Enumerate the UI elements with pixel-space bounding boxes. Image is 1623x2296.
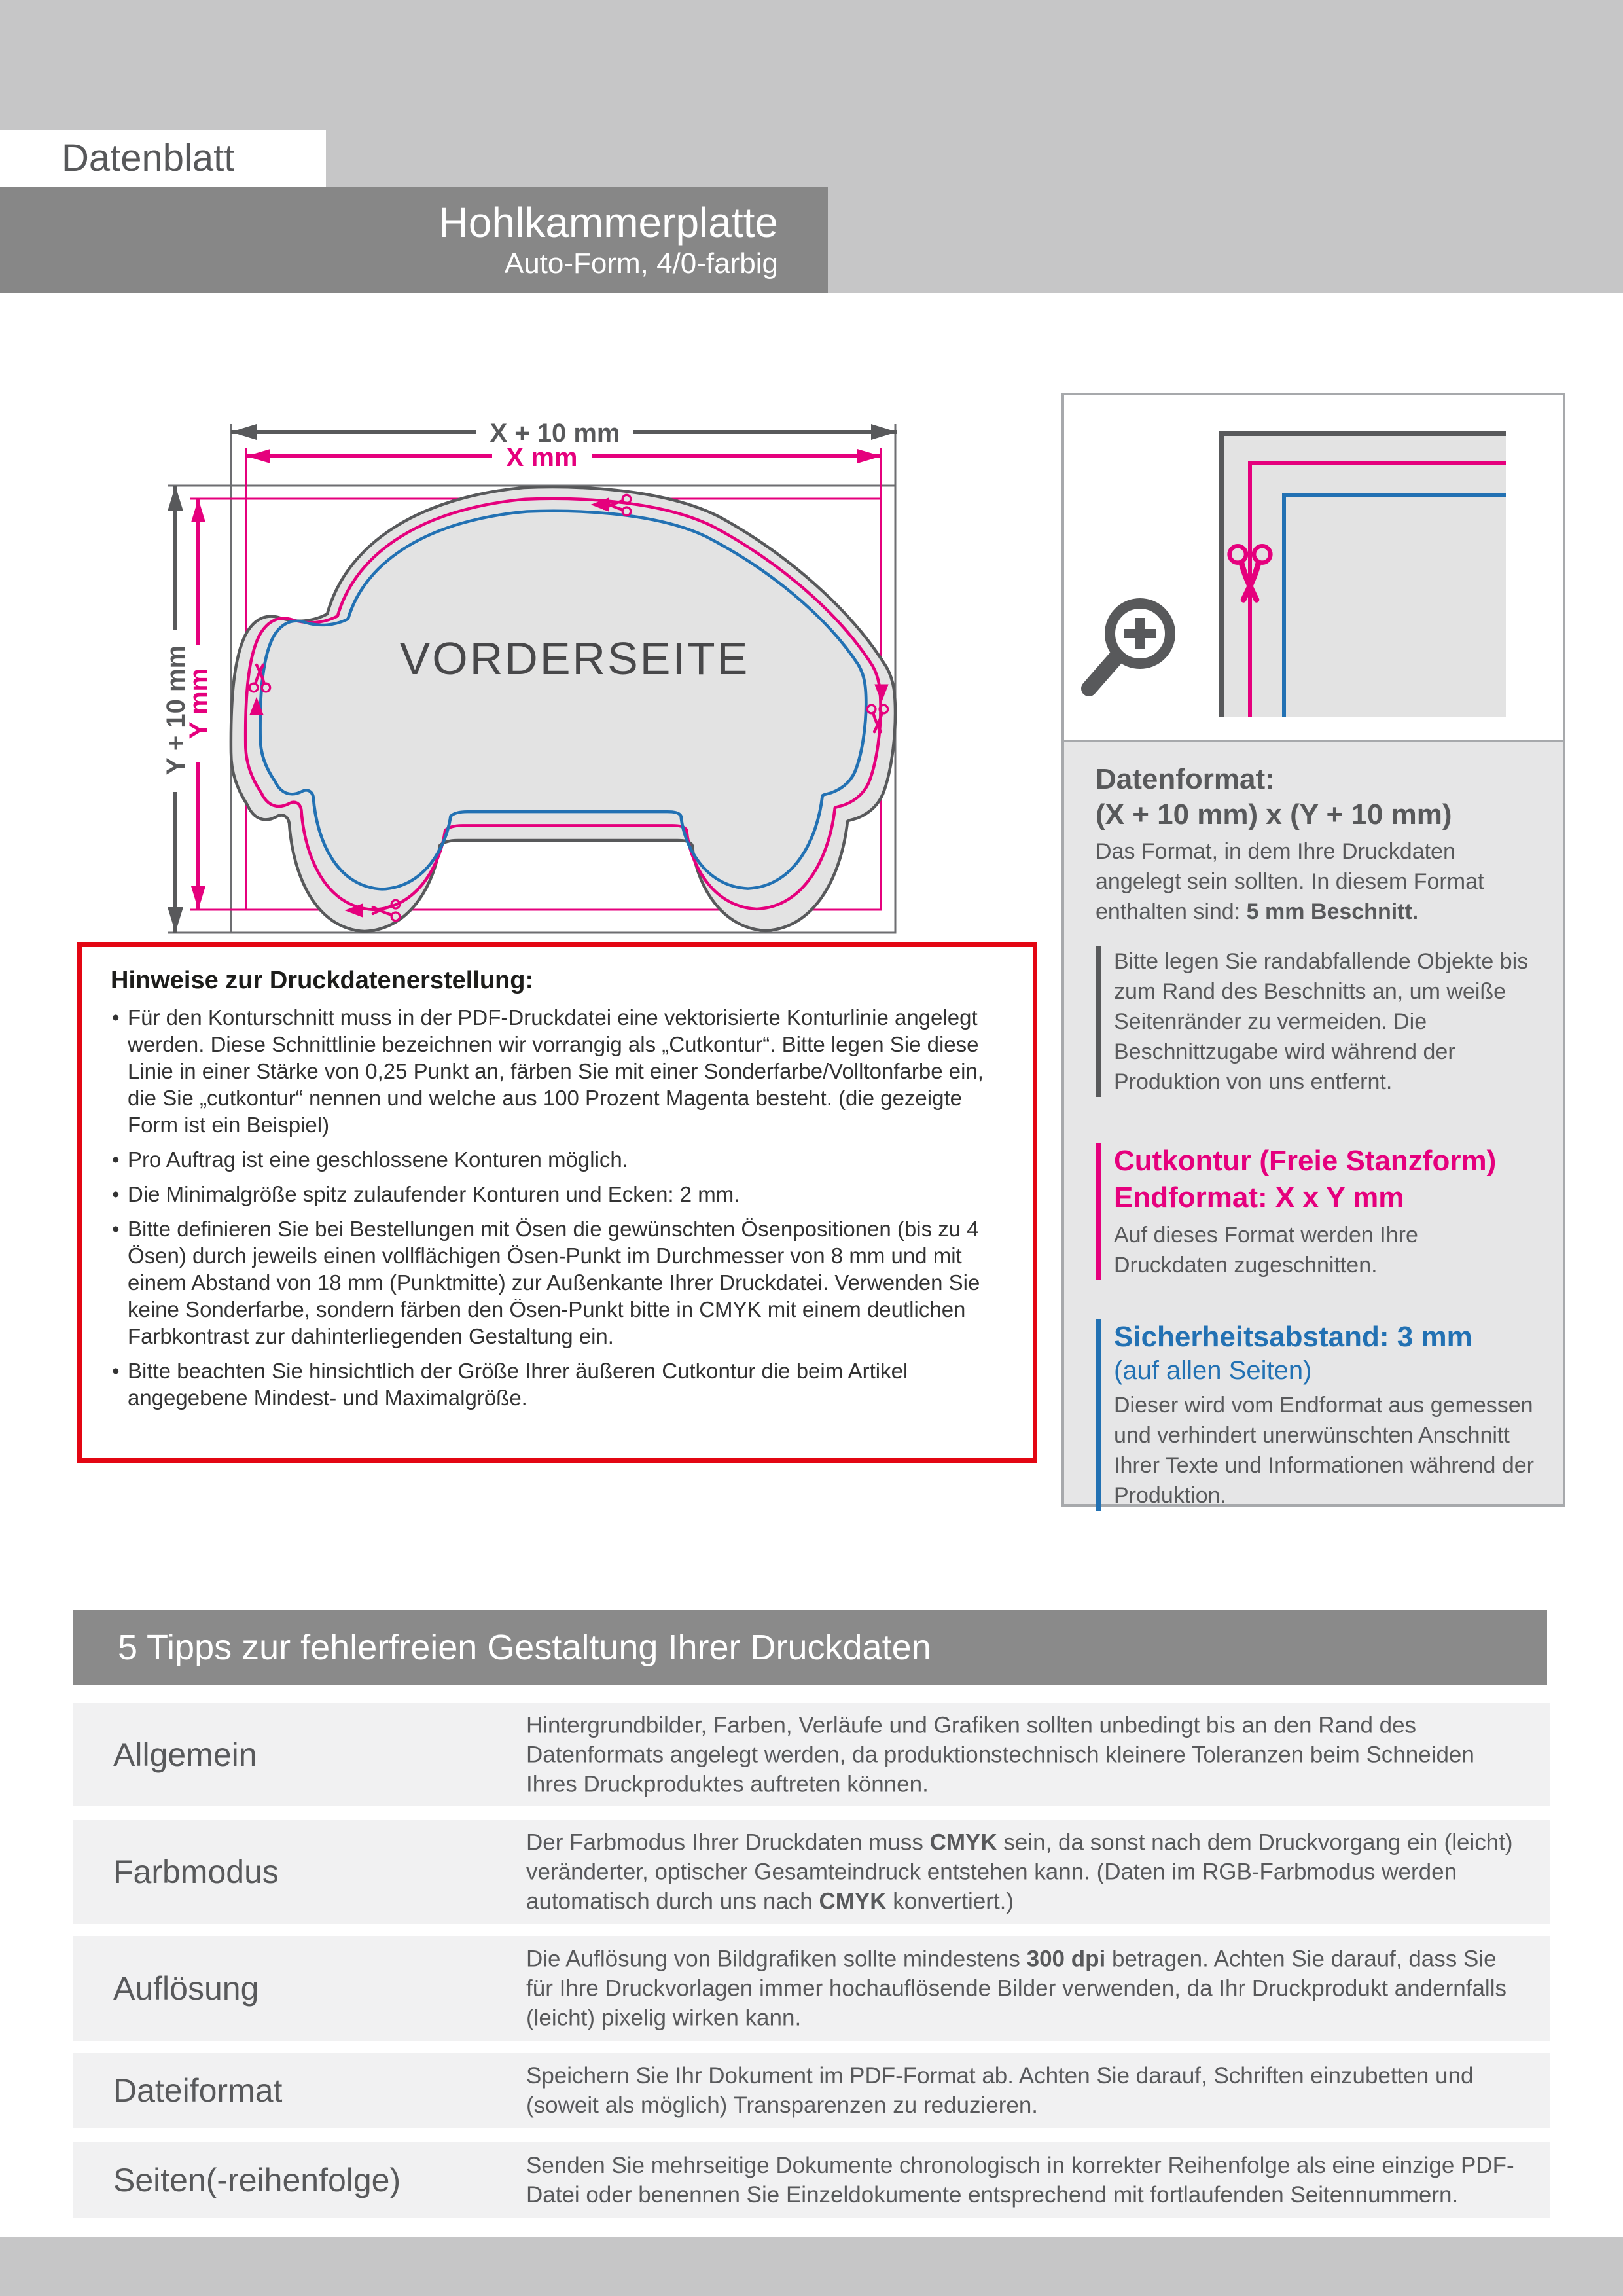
product-title-bar: Hohlkammerplatte Auto-Form, 4/0-farbig: [0, 187, 828, 293]
format-info-panel: Datenformat: (X + 10 mm) x (Y + 10 mm) D…: [1061, 393, 1565, 1507]
notes-title: Hinweise zur Druckdatenerstellung:: [111, 967, 1004, 995]
dimension-x-inner: X mm: [246, 443, 882, 472]
datenblatt-label-box: Datenblatt: [0, 130, 326, 187]
table-row: Farbmodus Der Farbmodus Ihrer Druckdaten…: [73, 1820, 1550, 1924]
cutkontur-format: Endformat: X x Y mm: [1114, 1179, 1538, 1216]
list-item: Die Minimalgröße spitz zulaufender Kontu…: [111, 1181, 1004, 1208]
row-text: Speichern Sie Ihr Dokument im PDF-Format…: [526, 2061, 1527, 2120]
cutkontur-title: Cutkontur (Freie Stanzform): [1114, 1143, 1538, 1179]
table-row: Auflösung Die Auflösung von Bildgrafiken…: [73, 1936, 1550, 2041]
row-text-seg: Speichern Sie Ihr Dokument im PDF-Format…: [526, 2063, 1473, 2118]
cutkontur-body: Auf dieses Format werden Ihre Druckdaten…: [1114, 1220, 1538, 1280]
datenformat-frame: [168, 424, 895, 933]
notes-list: Für den Konturschnitt muss in der PDF-Dr…: [111, 1004, 1004, 1411]
print-data-notes-box: Hinweise zur Druckdatenerstellung: Für d…: [77, 942, 1037, 1463]
table-row: Seiten(-reihenfolge) Senden Sie mehrseit…: [73, 2142, 1550, 2218]
datenformat-format: (X + 10 mm) x (Y + 10 mm): [1096, 797, 1538, 833]
safety-section: Sicherheitsabstand: 3 mm (auf allen Seit…: [1096, 1319, 1538, 1511]
list-item: Für den Konturschnitt muss in der PDF-Dr…: [111, 1004, 1004, 1138]
row-label: Auflösung: [113, 1969, 259, 2007]
scissors-icon: [604, 495, 631, 515]
row-label: Allgemein: [113, 1736, 257, 1774]
format-info-text: Datenformat: (X + 10 mm) x (Y + 10 mm) D…: [1064, 742, 1563, 1504]
row-text-bold: 300 dpi: [1027, 1946, 1106, 1972]
product-subtitle: Auto-Form, 4/0-farbig: [505, 246, 778, 281]
scissors-icon: [373, 900, 400, 920]
tips-header-bar: 5 Tipps zur fehlerfreien Gestaltung Ihre…: [73, 1610, 1547, 1685]
dimension-y-inner: Y mm: [185, 499, 213, 910]
footer-band: [0, 2237, 1623, 2296]
row-text-seg: konvertiert.): [887, 1889, 1014, 1914]
car-outer-contour: [231, 487, 895, 931]
row-text-seg: Senden Sie mehrseitige Dokumente chronol…: [526, 2153, 1514, 2208]
list-item: Pro Auftrag ist eine geschlossene Kontur…: [111, 1146, 1004, 1173]
cut-direction-arrow: [250, 698, 263, 715]
cutkontur-section: Cutkontur (Freie Stanzform) Endformat: X…: [1096, 1143, 1538, 1280]
car-cutkontur-line: [245, 499, 880, 910]
scissors-icon: [249, 665, 270, 692]
dim-x-inner-label: X mm: [507, 443, 578, 472]
cut-direction-arrow: [592, 498, 609, 511]
product-title: Hohlkammerplatte: [438, 199, 778, 246]
row-text-seg: Die Auflösung von Bildgrafiken sollte mi…: [526, 1946, 1027, 1972]
row-text: Der Farbmodus Ihrer Druckdaten muss CMYK…: [526, 1828, 1527, 1916]
safety-title: Sicherheitsabstand: 3 mm: [1114, 1319, 1538, 1355]
list-item: Bitte beachten Sie hinsichtlich der Größ…: [111, 1357, 1004, 1411]
dimension-y-outer: Y + 10 mm: [162, 486, 190, 933]
safety-body: Dieser wird vom Endformat aus gemessen u…: [1114, 1390, 1538, 1511]
front-side-label: VORDERSEITE: [400, 633, 750, 684]
row-text: Hintergrundbilder, Farben, Verläufe und …: [526, 1711, 1527, 1799]
datenformat-body: Das Format, in dem Ihre Druckdaten angel…: [1096, 836, 1538, 927]
row-label: Dateiformat: [113, 2072, 282, 2109]
table-row: Dateiformat Speichern Sie Ihr Dokument i…: [73, 2053, 1550, 2128]
row-text-seg: Der Farbmodus Ihrer Druckdaten muss: [526, 1830, 930, 1856]
tips-title: 5 Tipps zur fehlerfreien Gestaltung Ihre…: [73, 1610, 1547, 1685]
bleed-bold: 5 mm Beschnitt.: [1247, 899, 1419, 924]
cut-direction-arrow: [346, 904, 363, 917]
dim-y-inner-label: Y mm: [185, 668, 213, 739]
safety-subtitle: (auf allen Seiten): [1114, 1355, 1538, 1386]
scissors-icon: [867, 705, 887, 732]
page-title: Datenblatt: [0, 130, 326, 187]
dimension-x-outer: X + 10 mm: [231, 419, 897, 448]
table-row: Allgemein Hintergrundbilder, Farben, Ver…: [73, 1703, 1550, 1806]
cut-direction-arrow: [875, 685, 888, 702]
dim-y-outer-label: Y + 10 mm: [162, 645, 190, 775]
car-safety-line: [260, 511, 866, 889]
list-item: Bitte definieren Sie bei Bestellungen mi…: [111, 1215, 1004, 1350]
row-text: Die Auflösung von Bildgrafiken sollte mi…: [526, 1945, 1527, 2033]
row-label: Farbmodus: [113, 1853, 279, 1891]
row-text-bold: CMYK: [930, 1830, 997, 1856]
corner-zoom-illustration: [1064, 395, 1563, 742]
row-text-bold: CMYK: [819, 1889, 886, 1914]
endformat-frame: [190, 448, 881, 910]
row-label: Seiten(-reihenfolge): [113, 2161, 401, 2199]
dim-x-outer-label: X + 10 mm: [490, 419, 620, 448]
row-text: Senden Sie mehrseitige Dokumente chronol…: [526, 2151, 1527, 2210]
bleed-note: Bitte legen Sie randabfallende Objekte b…: [1096, 946, 1538, 1097]
row-text-seg: Hintergrundbilder, Farben, Verläufe und …: [526, 1713, 1474, 1797]
datenformat-title: Datenformat:: [1096, 762, 1538, 797]
